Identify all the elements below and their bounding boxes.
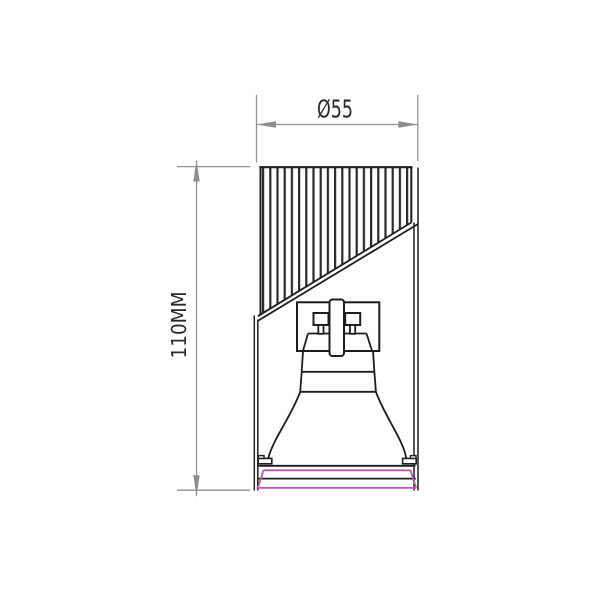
tab-left (258, 458, 272, 463)
gu10-lamp (268, 300, 406, 459)
pin-head-right (345, 313, 360, 325)
mounting-tabs (258, 456, 416, 479)
pin-head-left (314, 313, 329, 325)
neck-left-1 (302, 351, 303, 372)
reflector-cone-right (376, 392, 406, 459)
arrowhead-left-icon (257, 121, 277, 127)
diameter-label: Ø55 (317, 95, 353, 124)
arrowhead-up-icon (193, 161, 199, 182)
arrowhead-down-icon (193, 475, 199, 496)
neck-left-2 (300, 372, 302, 392)
pin-leg-right (350, 325, 355, 334)
height-label: 110MM (167, 292, 191, 359)
neck-right-2 (374, 372, 376, 392)
height-dimension: 110MM (167, 161, 251, 497)
diameter-dimension: Ø55 (257, 95, 418, 163)
neck-right-1 (373, 351, 374, 372)
reflector-cone-left (268, 392, 300, 459)
pin-leg-left (318, 325, 323, 334)
tab-nub-right (410, 456, 416, 459)
tab-nub-left (258, 456, 264, 459)
lamp-stem (330, 300, 345, 357)
arrowhead-right-icon (398, 121, 418, 127)
technical-drawing-canvas: Ø55 110MM (0, 0, 600, 600)
tab-right (403, 458, 417, 463)
downlight-section-drawing: Ø55 110MM (0, 0, 600, 600)
